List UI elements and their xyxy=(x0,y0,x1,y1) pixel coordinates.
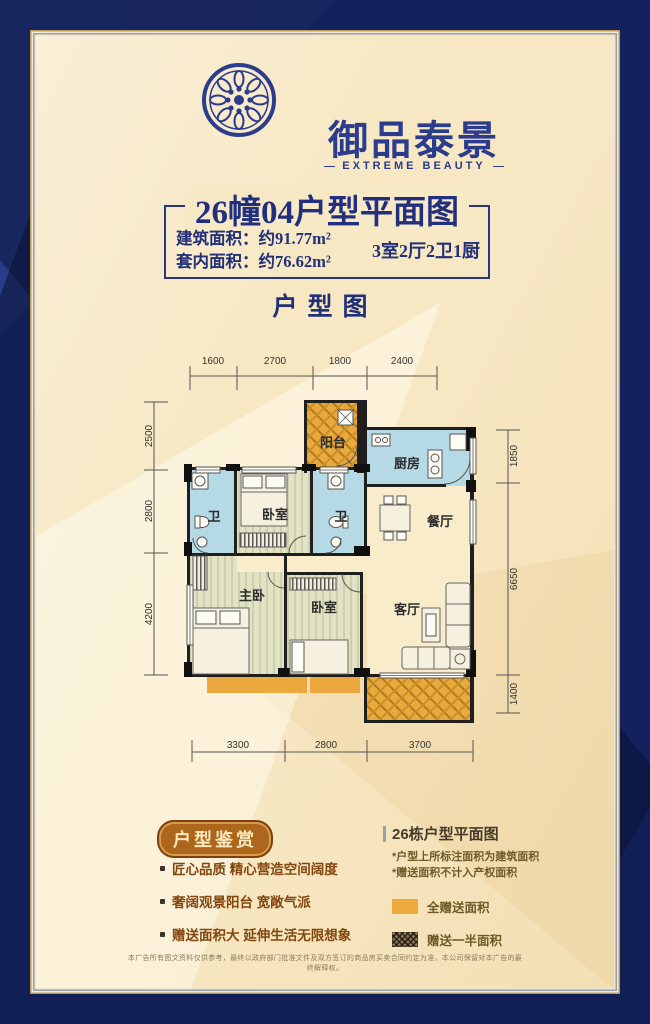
legend: 全赠送面积 赠送一半面积 xyxy=(392,897,558,949)
poster-page: 御品泰景 EXTREME BEAUTY 26幢04户型平面图 建筑面积：约91.… xyxy=(0,0,650,1024)
bay-window-2 xyxy=(310,677,360,693)
svg-text:4200: 4200 xyxy=(144,602,155,625)
tagline-rule-right xyxy=(493,166,504,167)
brand-tagline: EXTREME BEAUTY xyxy=(342,160,485,172)
svg-text:1800: 1800 xyxy=(329,356,352,367)
legend-swatch-full-gift-icon xyxy=(392,899,418,914)
svg-text:3700: 3700 xyxy=(409,740,432,751)
svg-text:6650: 6650 xyxy=(509,567,520,590)
unit-areas: 建筑面积：约91.77m² 套内面积：约76.62m² xyxy=(176,227,331,273)
bullet-dot-icon xyxy=(160,866,165,871)
unit-info-banner: 26幢04户型平面图 建筑面积：约91.77m² 套内面积：约76.62m² 3… xyxy=(164,205,490,279)
floor-plan: 阳台 厨房 餐厅 卫 卧室 卫 主卧 卧室 客厅 1600 2700 1 xyxy=(140,350,525,765)
unit-title: 26幢04户型平面图 xyxy=(185,185,469,233)
room-label-bath-left: 卫 xyxy=(207,509,220,524)
inner-area: 套内面积：约76.62m² xyxy=(176,250,331,273)
tagline-rule-left xyxy=(324,166,335,167)
bullet-dot-icon xyxy=(160,899,165,904)
room-label-master: 主卧 xyxy=(239,588,265,603)
dim-bottom: 3300 2800 3700 xyxy=(192,740,473,762)
brand-tagline-row: EXTREME BEAUTY xyxy=(324,160,504,172)
notes-header: 26栋户型平面图 xyxy=(383,823,558,844)
room-label-bath-right: 卫 xyxy=(334,509,347,524)
dim-top: 1600 2700 1800 2400 xyxy=(190,356,437,390)
legend-swatch-half-gift-icon xyxy=(392,932,418,947)
svg-text:1400: 1400 xyxy=(509,682,520,705)
brand-name: 御品泰景 xyxy=(328,108,500,166)
appreciation-badge: 户型鉴赏 xyxy=(157,820,273,858)
svg-text:2400: 2400 xyxy=(391,356,414,367)
dim-left: 2500 2800 4200 xyxy=(144,402,168,675)
rooms-summary: 3室2厅2卫1厨 xyxy=(372,237,480,263)
room-label-kitchen: 厨房 xyxy=(394,456,420,471)
notes-header-bar xyxy=(383,826,386,842)
section-title: 户型图 xyxy=(125,287,525,323)
bullet-dot-icon xyxy=(160,932,165,937)
room-label-living: 客厅 xyxy=(394,602,420,617)
svg-text:3300: 3300 xyxy=(227,740,250,751)
svg-text:1600: 1600 xyxy=(202,356,225,367)
unit-info-row: 建筑面积：约91.77m² 套内面积：约76.62m² 3室2厅2卫1厨 xyxy=(176,227,480,273)
note-item: *户型上所标注面积为建筑面积 xyxy=(392,849,558,865)
room-label-bedroom-mid: 卧室 xyxy=(262,507,288,522)
note-item: *赠送面积不计入产权面积 xyxy=(392,865,558,881)
svg-text:2700: 2700 xyxy=(264,356,287,367)
appreciation-bullets: 匠心品质 精心营造空间阔度 奢阔观景阳台 宽敞气派 赠送面积大 延伸生活无限想象 xyxy=(160,858,351,957)
svg-text:2800: 2800 xyxy=(144,499,155,522)
bullet-item: 匠心品质 精心营造空间阔度 xyxy=(160,858,351,878)
room-label-bedroom2: 卧室 xyxy=(311,600,337,615)
svg-text:1850: 1850 xyxy=(509,444,520,467)
bay-window-1 xyxy=(207,677,307,693)
legend-item-full: 全赠送面积 xyxy=(392,897,558,916)
notes-list: *户型上所标注面积为建筑面积 *赠送面积不计入产权面积 xyxy=(392,849,558,881)
legend-item-half: 赠送一半面积 xyxy=(392,930,558,949)
room-label-balcony: 阳台 xyxy=(320,435,346,450)
svg-text:2800: 2800 xyxy=(315,740,338,751)
brand-seal-icon xyxy=(200,61,278,139)
disclaimer-text: 本广告所有图文资料仅供参考，最终以政府部门批准文件及双方签订的商品房买卖合同约定… xyxy=(125,953,525,973)
bullet-item: 奢阔观景阳台 宽敞气派 xyxy=(160,891,351,911)
notes-title: 26栋户型平面图 xyxy=(392,823,499,844)
bullet-item: 赠送面积大 延伸生活无限想象 xyxy=(160,924,351,944)
room-balcony-bottom xyxy=(367,677,470,720)
plan-notes-column: 26栋户型平面图 *户型上所标注面积为建筑面积 *赠送面积不计入产权面积 全赠送… xyxy=(383,823,558,963)
build-area: 建筑面积：约91.77m² xyxy=(176,227,331,250)
svg-text:2500: 2500 xyxy=(144,424,155,447)
room-label-dining: 餐厅 xyxy=(426,514,453,529)
dim-right: 1850 6650 1400 xyxy=(496,430,520,713)
